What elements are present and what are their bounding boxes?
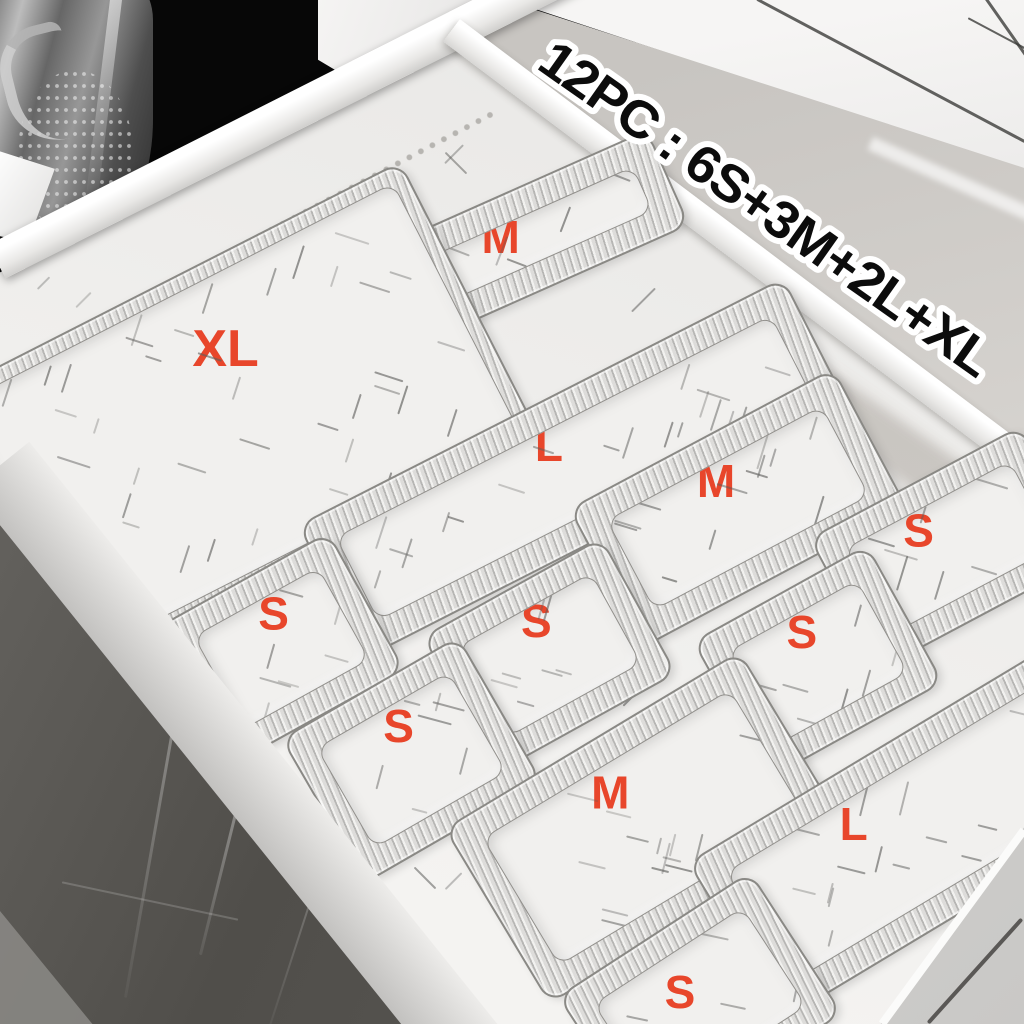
size-label: M <box>697 458 735 504</box>
size-label: S <box>383 703 414 749</box>
size-label: XL <box>192 323 258 375</box>
marble-vein <box>124 702 179 998</box>
cabinet-seam-line <box>951 0 1024 74</box>
size-label: L <box>840 801 868 847</box>
size-label: S <box>664 969 695 1015</box>
size-label: L <box>535 422 563 468</box>
size-label: S <box>786 609 817 655</box>
product-photo: M XL L M S S S S S <box>0 0 1024 1024</box>
size-label: S <box>903 508 934 554</box>
size-label: M <box>591 769 629 815</box>
cabinet-seam-line <box>968 17 1024 84</box>
size-label: S <box>258 590 289 636</box>
